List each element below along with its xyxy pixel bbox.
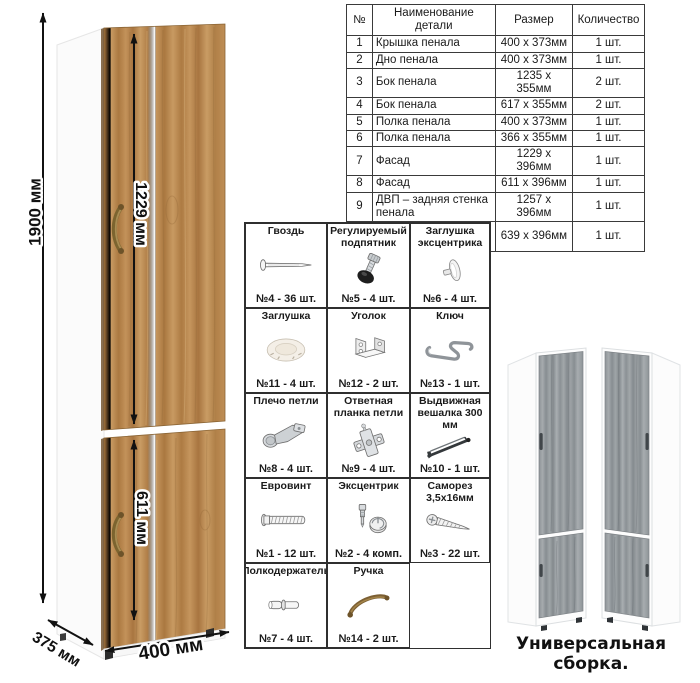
self-tapping-screw-icon [416, 505, 484, 548]
adjustable-foot-icon [335, 250, 403, 293]
table-cell: 1 [347, 36, 373, 52]
hardware-item: Уголок№12 - 2 шт. [327, 308, 410, 393]
table-cell: 8 [347, 176, 373, 192]
hardware-item-count: №6 - 4 шт. [423, 293, 477, 306]
hardware-item: Заглушка эксцентрика№6 - 4 шт. [410, 223, 490, 308]
hardware-item: Регулируемый подпятник№5 - 4 шт. [327, 223, 410, 308]
upper-door-dimension-label: 1229 мм [132, 182, 149, 246]
table-row: 7Фасад1229 х 396мм1 шт. [347, 146, 645, 175]
hex-key-icon [416, 323, 484, 378]
hardware-item-label: Ручка [353, 566, 383, 578]
cap-icon [252, 323, 320, 378]
hardware-item-label: Гвоздь [268, 226, 305, 238]
hardware-item-label: Ответная планка петли [329, 396, 408, 420]
hardware-grid: Гвоздь№4 - 36 шт.Регулируемый подпятник№… [244, 222, 491, 649]
column-header: Размер [495, 5, 572, 36]
hardware-item-count: №11 - 4 шт. [256, 378, 316, 391]
table-cell: 1 шт. [572, 36, 644, 52]
hardware-item-label: Евровинт [261, 481, 312, 493]
hardware-item: Полкодержатель№7 - 4 шт. [245, 563, 327, 648]
mini-cabinets-illustration [497, 333, 700, 633]
mini-door-handle [646, 564, 649, 577]
table-cell: 1 шт. [572, 192, 644, 221]
table-cell: 7 [347, 146, 373, 175]
mini-door-handle [646, 433, 649, 450]
hardware-item: Гвоздь№4 - 36 шт. [245, 223, 327, 308]
hardware-item-label: Эксцентрик [338, 481, 398, 493]
hardware-item-count: №2 - 4 комп. [335, 548, 402, 561]
handle-icon [335, 578, 403, 633]
table-row: 2Дно пенала400 х 373мм1 шт. [347, 52, 645, 68]
hardware-item-count: №10 - 1 шт. [420, 463, 480, 476]
hardware-item-count: №12 - 2 шт. [338, 378, 398, 391]
table-cell: 1 шт. [572, 130, 644, 146]
table-cell: Полка пенала [372, 130, 495, 146]
hardware-item-label: Уголок [351, 311, 386, 323]
hardware-item-count: №5 - 4 шт. [342, 293, 396, 306]
table-cell: 2 [347, 52, 373, 68]
cabinet-side-panel [57, 28, 104, 659]
cam-lock-icon [335, 493, 403, 548]
height-dimension-label: 1900 мм [25, 178, 44, 246]
hardware-item: Заглушка№11 - 4 шт. [245, 308, 327, 393]
pullout-hanger-icon [416, 431, 484, 463]
table-cell: 1 шт. [572, 114, 644, 130]
hinge-plate-icon [335, 420, 403, 463]
cam-cover-icon [416, 250, 484, 293]
table-cell: Бок пенала [372, 98, 495, 114]
hardware-item: Ответная планка петли№9 - 4 шт. [327, 393, 410, 478]
corner-bracket-icon [335, 323, 403, 378]
table-cell: 639 х 396мм [495, 222, 572, 251]
hardware-item-label: Заглушка [262, 311, 311, 323]
table-cell: Фасад [372, 146, 495, 175]
table-cell: 1 шт. [572, 146, 644, 175]
table-cell: 1257 х 396мм [495, 192, 572, 221]
table-cell: 3 [347, 68, 373, 97]
table-cell: 1 шт. [572, 222, 644, 251]
table-row: 4Бок пенала617 х 355мм2 шт. [347, 98, 645, 114]
cabinet-upper-door [104, 24, 225, 430]
assembly-caption: Универсальная сборка. [482, 634, 700, 674]
mini-door-handle [540, 433, 543, 450]
table-header-row: № Наименование детали Размер Количество [347, 5, 645, 36]
hinge-arm-icon [252, 408, 320, 463]
hardware-item-label: Регулируемый подпятник [329, 226, 408, 250]
hardware-item-label: Плечо петли [253, 396, 318, 408]
hardware-item: Саморез 3,5х16мм№3 - 22 шт. [410, 478, 490, 563]
cabinet-foot [60, 633, 66, 641]
hardware-item-label: Саморез 3,5х16мм [412, 481, 488, 505]
table-cell: 1 шт. [572, 52, 644, 68]
table-cell: 1 шт. [572, 176, 644, 192]
table-row: 9ДВП – задняя стенка пенала1257 х 396мм1… [347, 192, 645, 221]
mini-cabinet-right [602, 348, 680, 631]
table-row: 3Бок пенала1235 х 355мм2 шт. [347, 68, 645, 97]
table-cell: 2 шт. [572, 68, 644, 97]
hardware-item-count: №8 - 4 шт. [259, 463, 313, 476]
table-cell: 400 х 373мм [495, 114, 572, 130]
table-row: 6Полка пенала366 х 355мм1 шт. [347, 130, 645, 146]
hardware-item-label: Полкодержатель [245, 566, 327, 578]
hardware-item: Плечо петли№8 - 4 шт. [245, 393, 327, 478]
table-cell: 9 [347, 192, 373, 221]
lower-door-dimension-label: 611 мм [133, 491, 150, 545]
hardware-item-count: №7 - 4 шт. [259, 633, 313, 646]
table-cell: 5 [347, 114, 373, 130]
hardware-item: Эксцентрик№2 - 4 комп. [327, 478, 410, 563]
table-cell: 611 х 396мм [495, 176, 572, 192]
assembly-sheet: 1900 мм 1229 мм 611 мм 375 мм 400 мм № Н… [0, 0, 700, 683]
hardware-item: Ключ№13 - 1 шт. [410, 308, 490, 393]
hardware-item: Ручка№14 - 2 шт. [327, 563, 410, 648]
table-row: 5Полка пенала400 х 373мм1 шт. [347, 114, 645, 130]
hardware-item-count: №4 - 36 шт. [256, 293, 316, 306]
hardware-item-label: Ключ [436, 311, 464, 323]
mini-door-handle [540, 564, 543, 577]
table-cell: ДВП – задняя стенка пенала [372, 192, 495, 221]
column-header: № [347, 5, 373, 36]
table-cell: Крышка пенала [372, 36, 495, 52]
hardware-item-label: Заглушка эксцентрика [412, 226, 488, 250]
shelf-pin-icon [252, 578, 320, 633]
table-cell: 2 шт. [572, 98, 644, 114]
hardware-item-count: №1 - 12 шт. [256, 548, 316, 561]
table-cell: Фасад [372, 176, 495, 192]
table-cell: 1235 х 355мм [495, 68, 572, 97]
parts-table: № Наименование детали Размер Количество … [346, 4, 645, 252]
table-cell: Полка пенала [372, 114, 495, 130]
hardware-item: Выдвижная вешалка 300 мм№10 - 1 шт. [410, 393, 490, 478]
table-cell: 617 х 355мм [495, 98, 572, 114]
table-cell: Дно пенала [372, 52, 495, 68]
table-cell: 4 [347, 98, 373, 114]
table-cell: 366 х 355мм [495, 130, 572, 146]
table-cell: 6 [347, 130, 373, 146]
table-cell: 1229 х 396мм [495, 146, 572, 175]
confirmat-screw-icon [252, 493, 320, 548]
hardware-item: Евровинт№1 - 12 шт. [245, 478, 327, 563]
table-row: 1Крышка пенала400 х 373мм1 шт. [347, 36, 645, 52]
column-header: Количество [572, 5, 644, 36]
hardware-item-count: №14 - 2 шт. [338, 633, 398, 646]
table-cell: 400 х 373мм [495, 36, 572, 52]
column-header: Наименование детали [372, 5, 495, 36]
table-cell: 400 х 373мм [495, 52, 572, 68]
hardware-item-count: №3 - 22 шт. [420, 548, 480, 561]
table-cell: Бок пенала [372, 68, 495, 97]
table-row: 8Фасад611 х 396мм1 шт. [347, 176, 645, 192]
nail-icon [252, 238, 320, 293]
mini-cabinet-left [508, 348, 586, 631]
parts-table-body: 1Крышка пенала400 х 373мм1 шт.2Дно пенал… [347, 36, 645, 251]
hardware-item-label: Выдвижная вешалка 300 мм [412, 396, 488, 431]
hardware-item-count: №9 - 4 шт. [342, 463, 396, 476]
hardware-item-count: №13 - 1 шт. [420, 378, 480, 391]
